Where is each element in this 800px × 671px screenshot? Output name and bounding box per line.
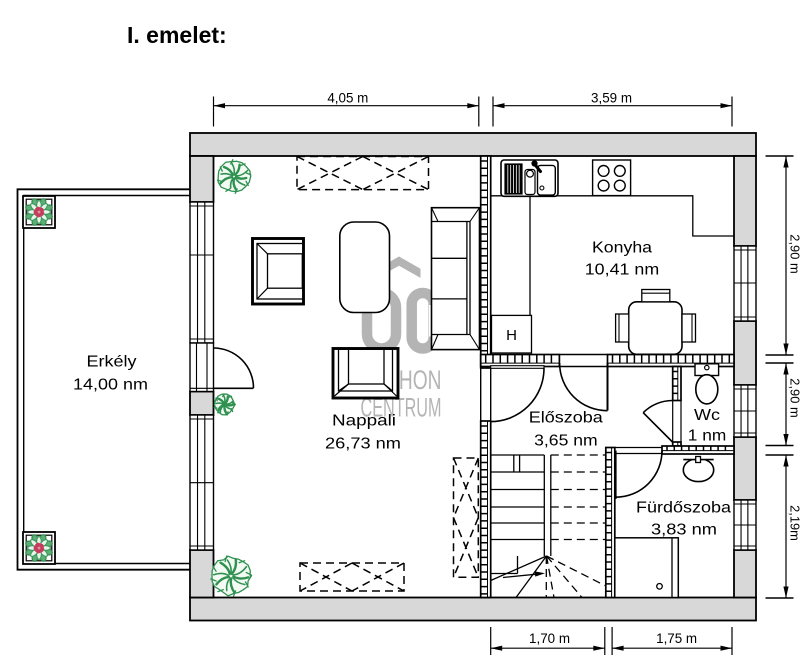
svg-text:Nappali: Nappali xyxy=(332,413,396,430)
svg-text:Konyha: Konyha xyxy=(592,240,652,257)
svg-text:10,41 nm: 10,41 nm xyxy=(585,262,660,279)
svg-text:26,73 nm: 26,73 nm xyxy=(325,436,401,453)
svg-text:14,00 nm: 14,00 nm xyxy=(73,377,148,394)
svg-text:Wc: Wc xyxy=(694,407,720,424)
svg-text:3,83 nm: 3,83 nm xyxy=(651,522,717,539)
svg-text:3,65 nm: 3,65 nm xyxy=(534,432,598,449)
svg-text:Előszoba: Előszoba xyxy=(529,409,603,426)
svg-text:2,90 m: 2,90 m xyxy=(787,234,800,273)
svg-text:3,59 m: 3,59 m xyxy=(591,91,632,106)
svg-text:I. emelet:: I. emelet: xyxy=(127,22,227,48)
svg-text:1,70 m: 1,70 m xyxy=(529,631,570,646)
svg-text:Fürdőszoba: Fürdőszoba xyxy=(636,500,731,517)
svg-text:Erkély: Erkély xyxy=(87,354,137,371)
svg-text:H: H xyxy=(506,327,517,344)
svg-text:4,05 m: 4,05 m xyxy=(327,91,368,106)
svg-text:1 nm: 1 nm xyxy=(688,428,727,445)
svg-text:2,90 m: 2,90 m xyxy=(787,378,800,417)
svg-text:2,19m: 2,19m xyxy=(787,505,800,541)
svg-text:1,75 m: 1,75 m xyxy=(656,631,697,646)
